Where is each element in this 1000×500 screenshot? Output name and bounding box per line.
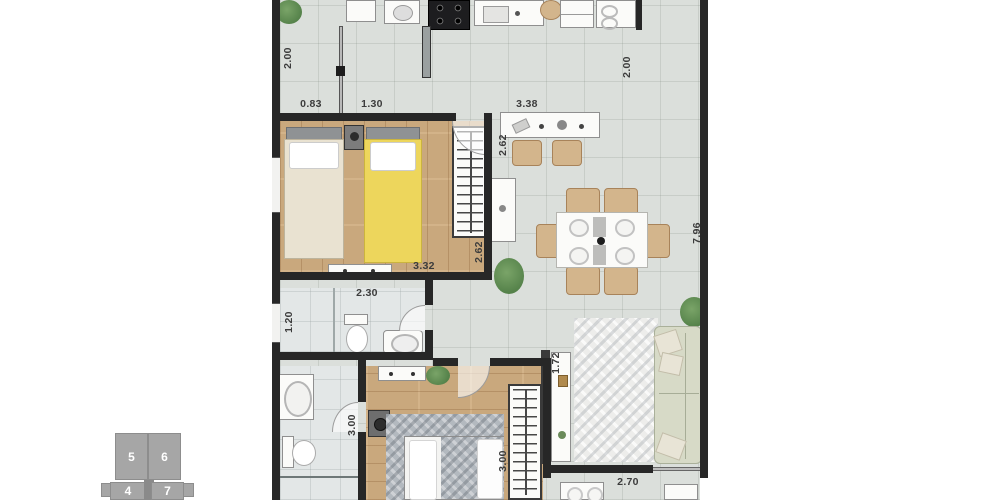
dim-kitchen-seg-b: 1.30 [361,98,383,110]
toilet-bowl-bath2 [292,440,316,466]
keyplan-unit-5: 5 [115,433,148,480]
fridge-door-line [561,14,593,15]
nightstand-lamp [350,132,359,141]
keyplan-unit-6-label: 6 [161,450,168,464]
kitchen-chair [540,0,562,20]
dim-bedroom2-height: 3.00 [497,450,509,472]
console-decor-2 [558,431,566,439]
bar-stool-2 [552,140,582,166]
keyplan-unit-7: 7 [151,482,184,500]
wall-bed2-top-b [490,358,551,366]
wall-bedroom1-right [484,113,492,280]
dining-chair-bottom-2 [604,266,638,295]
rug-living [574,318,658,462]
dresser2-knob-2 [411,372,415,376]
keyplan-unit-4: 4 [110,482,146,500]
dim-counter-side: 2.62 [497,134,509,156]
wall-living-left [543,366,551,478]
counter-item-1 [512,118,531,134]
bar-counter [500,112,600,138]
laundry-tub [596,0,636,28]
wall-bath1-bottom [272,352,433,360]
wall-bedroom1-bottom [272,272,492,280]
keyplan: 5 6 4 7 [95,425,210,500]
buffet-cabinet [490,178,516,242]
dresser-bedroom2 [378,366,426,381]
dim-plan-right-height: 7.96 [691,222,703,244]
counter-item-4 [579,124,584,129]
dim-bedroom1-depth: 2.62 [473,241,485,263]
bar-stool-1 [512,140,542,166]
stove-cooktop [428,0,470,30]
counter-item-3 [557,120,567,130]
keyplan-unit-7-label: 7 [164,484,171,498]
wardrobe-bedroom2 [508,384,542,500]
console-decor-1 [558,375,568,387]
wall-bath1-right-a [425,280,433,305]
plant-bedroom2 [426,366,450,385]
wall-service-stub [636,0,642,30]
dim-bath1-width: 2.30 [356,287,378,299]
wall-bath2-right-a [358,360,366,402]
keyplan-unit-4-label: 4 [125,484,132,498]
wall-bed2-top-a [433,358,458,366]
dining-table [556,212,648,268]
bed2-pillow [370,142,416,171]
toilet-bowl-bath1 [346,325,368,353]
dim-kitchen-height: 2.00 [282,47,294,69]
sofa-pillow-2 [658,352,684,376]
balcony-table [560,482,604,500]
counter-sink-basin [483,6,509,23]
tub-basin-2 [601,17,618,30]
dining-chair-bottom-1 [566,266,600,295]
kitchen-cabinet [346,0,376,22]
balcony-cabinet [664,484,698,500]
dim-bedroom1-width: 3.32 [413,260,435,272]
table-centerpiece [597,237,605,245]
dim-balcony-width: 2.70 [617,476,639,488]
wall-living-bottom [543,465,653,473]
dim-kitchen-seg-a: 0.83 [300,98,322,110]
plate-2 [615,219,635,237]
shower-glass-bath1 [333,288,335,352]
window-bathroom1 [272,303,280,343]
faucet-dot [515,11,520,16]
dim-bath2-height: 3.00 [346,414,358,436]
sink-basin [393,5,413,21]
bed-sheet-fold [409,440,437,500]
dim-counter-width: 3.38 [516,98,538,110]
shower-glass-bath2 [280,476,358,478]
keyplan-notch-right [183,483,194,497]
bed1-pillow [289,142,339,169]
keyplan-unit-6: 6 [148,433,181,480]
balcony-plate-1 [567,487,583,500]
dim-bath1-depth: 1.20 [283,311,295,333]
dim-tv-wall-height: 1.72 [550,352,562,374]
wall-bath2-right-b [358,432,366,500]
table-runner-2 [593,245,606,265]
plate-3 [569,247,589,265]
plate-1 [569,219,589,237]
sink-basin-bath1 [391,334,419,354]
plate-4 [615,247,635,265]
keyplan-unit-5-label: 5 [128,450,135,464]
vanity-bath2 [280,374,314,420]
kitchen-counter [474,0,544,26]
kitchen-sink [384,0,420,24]
sink-bath1 [383,330,423,354]
fridge [560,0,594,28]
tall-cabinet [422,26,431,78]
sofa-seat-line [659,393,699,394]
wall-bedroom1-top [272,113,456,121]
nightstand [344,125,364,150]
sink-basin-bath2 [284,381,312,417]
dim-service-height: 2.00 [621,56,633,78]
dresser2-knob-1 [389,372,393,376]
door-knob [336,66,345,76]
plant-dining [494,258,524,294]
wall-left [272,0,280,500]
double-bed [404,436,504,500]
balcony-plate-2 [587,487,603,500]
counter-item-2 [539,124,544,129]
window-bedroom1 [272,157,280,213]
floor-plan-image: 2.00 0.83 1.30 3.38 2.00 7.96 2.62 3.32 … [0,0,1000,500]
toilet-bath1 [344,314,368,325]
table-runner-1 [593,217,606,237]
buffet-decor [499,205,506,212]
sliding-door-balcony [653,467,700,471]
